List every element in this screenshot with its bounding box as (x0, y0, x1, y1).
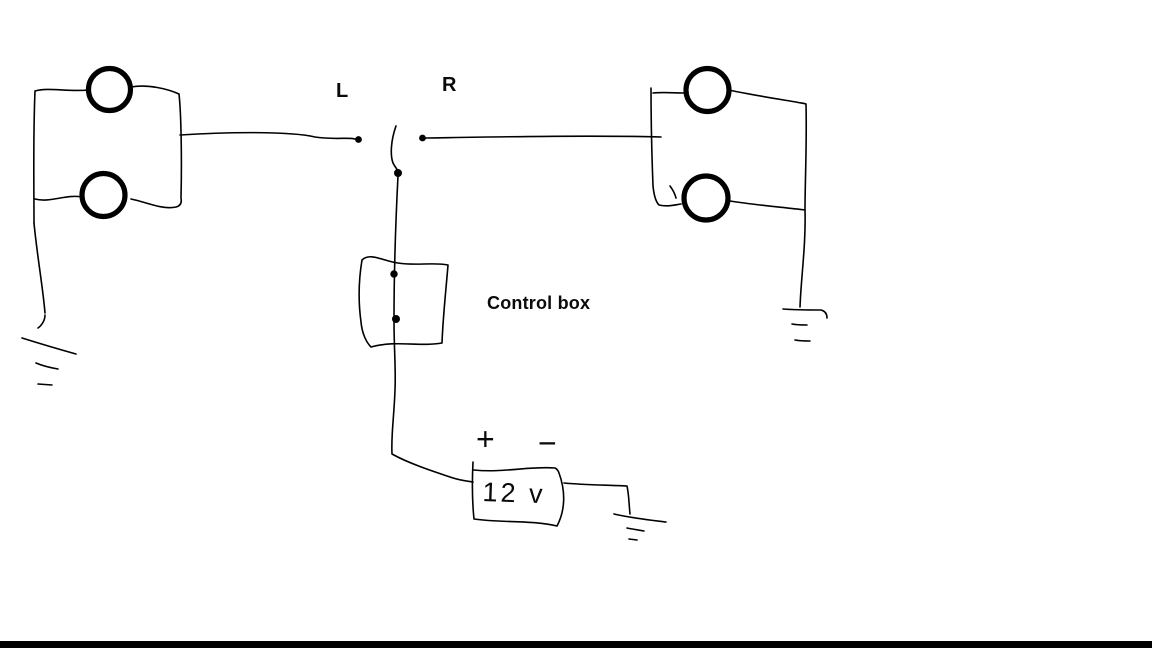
wire-left-lamps-to-switch (180, 133, 355, 139)
battery-voltage-label: 12 v (482, 479, 546, 508)
wire-switch-to-battery (392, 176, 473, 482)
right-lamp-circuit (425, 69, 827, 342)
battery-minus-symbol: − (538, 427, 557, 459)
control-box-outline (359, 257, 448, 347)
wire-left-ground-drop (34, 223, 45, 328)
switch-contact-left-dot (356, 137, 361, 142)
control-box-terminal-top-dot (391, 271, 397, 277)
label-control-box: Control box (487, 294, 590, 312)
ground-symbol-right (783, 309, 827, 341)
wire-right-ground-drop (800, 210, 805, 307)
toggle-switch (356, 126, 425, 176)
wire-battery-to-ground (564, 483, 630, 514)
battery-plus-symbol: + (476, 423, 495, 455)
left-lamp-circuit (22, 69, 355, 386)
label-right-turn: R (442, 75, 456, 95)
diagram-canvas: L R Control box + − 12 v (0, 0, 1152, 648)
right-lamp-bottom-icon (684, 176, 728, 220)
ground-symbol-battery (614, 514, 666, 540)
left-lamp-loop-wire (34, 86, 182, 223)
switch-lever (391, 126, 398, 171)
circuit-drawing (0, 0, 1152, 648)
wire-switch-to-right-lamps (425, 136, 661, 138)
ground-symbol-left (22, 338, 76, 385)
control-box (359, 257, 448, 347)
label-left-turn: L (336, 81, 348, 101)
right-lamp-top-icon (686, 69, 729, 112)
left-lamp-bottom-icon (82, 174, 125, 217)
control-box-terminal-bottom-dot (393, 316, 399, 322)
bottom-bar (0, 641, 1152, 648)
left-lamp-top-icon (89, 69, 131, 111)
